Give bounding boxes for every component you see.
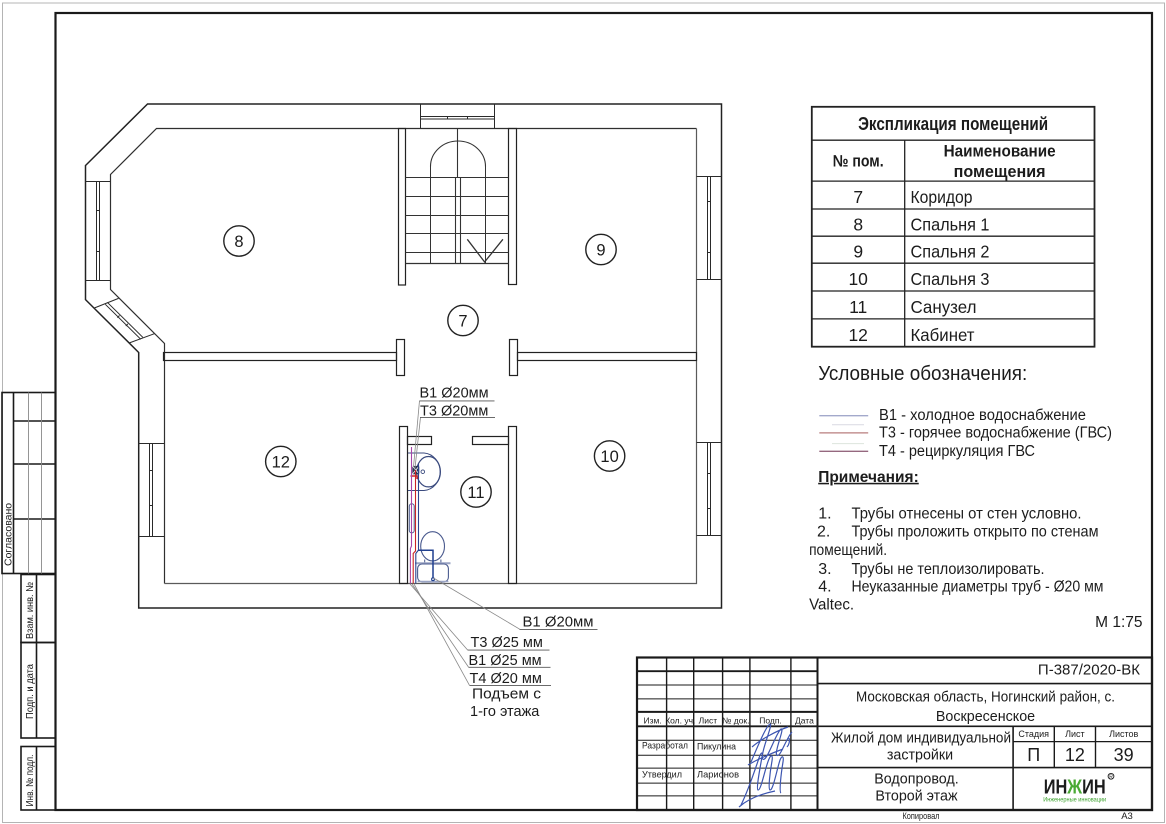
svg-text:12: 12 — [1065, 745, 1085, 765]
svg-text:Спальня 3: Спальня 3 — [911, 269, 990, 289]
svg-text:Т3 - горячее водоснабжение (ГВ: Т3 - горячее водоснабжение (ГВС) — [879, 424, 1112, 441]
svg-text:ИНЖИН: ИНЖИН — [1044, 776, 1106, 799]
svg-text:1.: 1. — [818, 506, 831, 523]
svg-text:R: R — [1109, 774, 1113, 780]
svg-text:В1 Ø20мм: В1 Ø20мм — [420, 386, 489, 402]
svg-text:Дата: Дата — [795, 715, 814, 725]
svg-text:А3: А3 — [1121, 811, 1133, 822]
svg-text:застройки: застройки — [887, 747, 953, 763]
svg-text:4.: 4. — [818, 578, 831, 595]
svg-text:Утвердил: Утвердил — [642, 770, 682, 781]
svg-text:Изм.: Изм. — [643, 715, 661, 725]
svg-text:Жилой дом индивидуальной: Жилой дом индивидуальной — [831, 731, 1011, 747]
svg-text:Трубы не теплоизолировать.: Трубы не теплоизолировать. — [852, 561, 1045, 578]
svg-text:Водопровод.: Водопровод. — [874, 772, 959, 788]
svg-text:№ пом.: № пом. — [833, 153, 884, 171]
svg-text:Трубы отнесены от стен условно: Трубы отнесены от стен условно. — [852, 506, 1082, 523]
svg-text:Санузел: Санузел — [911, 297, 977, 317]
svg-text:Кол. уч.: Кол. уч. — [665, 715, 695, 725]
svg-text:В1 Ø25 мм: В1 Ø25 мм — [469, 653, 542, 669]
svg-text:2.: 2. — [817, 524, 830, 541]
svg-text:39: 39 — [1114, 745, 1134, 765]
svg-text:Valtec.: Valtec. — [809, 597, 854, 614]
svg-text:В1 Ø20мм: В1 Ø20мм — [523, 615, 594, 631]
svg-text:Согласовано: Согласовано — [3, 503, 15, 566]
svg-text:11: 11 — [467, 484, 484, 502]
svg-text:Кабинет: Кабинет — [911, 325, 975, 345]
svg-text:Копировал: Копировал — [903, 811, 940, 822]
svg-text:Второй этаж: Второй этаж — [875, 788, 958, 804]
svg-text:3.: 3. — [818, 561, 831, 578]
svg-text:1-го этажа: 1-го этажа — [470, 704, 540, 720]
svg-text:Т4 - рециркуляция ГВС: Т4 - рециркуляция ГВС — [879, 443, 1035, 460]
svg-text:Пикулина: Пикулина — [697, 742, 737, 753]
svg-text:9: 9 — [853, 241, 863, 261]
svg-text:Подъем с: Подъем с — [472, 687, 541, 703]
svg-text:Т4 Ø20 мм: Т4 Ø20 мм — [470, 671, 542, 687]
svg-text:Наименование: Наименование — [944, 143, 1056, 161]
svg-text:Условные обозначения:: Условные обозначения: — [818, 363, 1027, 385]
svg-text:Примечания:: Примечания: — [818, 469, 919, 486]
svg-text:Московская область, Ногинский: Московская область, Ногинский район, с. — [856, 689, 1115, 705]
svg-text:Инженерные инновации: Инженерные инновации — [1043, 796, 1106, 803]
svg-text:8: 8 — [234, 233, 243, 251]
svg-text:Разработал: Разработал — [642, 741, 688, 752]
svg-text:В1 - холодное водоснабжение: В1 - холодное водоснабжение — [879, 407, 1086, 424]
svg-text:7: 7 — [458, 313, 467, 331]
svg-text:П: П — [1027, 745, 1040, 765]
svg-text:№ док.: № док. — [722, 715, 749, 725]
svg-text:8: 8 — [853, 214, 863, 234]
svg-text:М 1:75: М 1:75 — [1095, 614, 1142, 631]
svg-text:Лист: Лист — [699, 715, 718, 725]
svg-text:Неуказанные диаметры труб - Ø2: Неуказанные диаметры труб - Ø20 мм — [852, 578, 1104, 595]
svg-text:П-387/2020-ВК: П-387/2020-ВК — [1038, 662, 1140, 679]
svg-text:12: 12 — [272, 454, 290, 472]
svg-text:Воскресенское: Воскресенское — [936, 709, 1035, 725]
svg-text:9: 9 — [596, 242, 605, 260]
svg-text:Взам. инв. №: Взам. инв. № — [25, 582, 36, 639]
svg-text:Трубы проложить открыто по сте: Трубы проложить открыто по стенам — [852, 524, 1099, 541]
svg-text:Ларионов: Ларионов — [697, 770, 739, 781]
svg-text:Лист: Лист — [1065, 729, 1085, 739]
svg-text:11: 11 — [849, 297, 867, 317]
svg-text:10: 10 — [600, 448, 618, 466]
svg-text:Инв. № подл.: Инв. № подл. — [25, 755, 36, 807]
svg-text:12: 12 — [848, 325, 867, 345]
svg-text:10: 10 — [848, 269, 868, 289]
svg-text:Стадия: Стадия — [1018, 729, 1049, 739]
svg-text:Экспликация помещений: Экспликация помещений — [858, 114, 1048, 134]
svg-text:помещения: помещения — [954, 163, 1046, 181]
svg-text:Спальня 2: Спальня 2 — [911, 241, 990, 261]
svg-text:Т3 Ø25 мм: Т3 Ø25 мм — [471, 635, 543, 651]
svg-text:Листов: Листов — [1109, 729, 1138, 739]
svg-text:Коридор: Коридор — [911, 187, 973, 207]
svg-text:помещений.: помещений. — [809, 542, 887, 559]
svg-text:Подп. и дата: Подп. и дата — [25, 664, 36, 719]
svg-text:Спальня 1: Спальня 1 — [911, 214, 990, 234]
svg-text:7: 7 — [853, 187, 863, 207]
